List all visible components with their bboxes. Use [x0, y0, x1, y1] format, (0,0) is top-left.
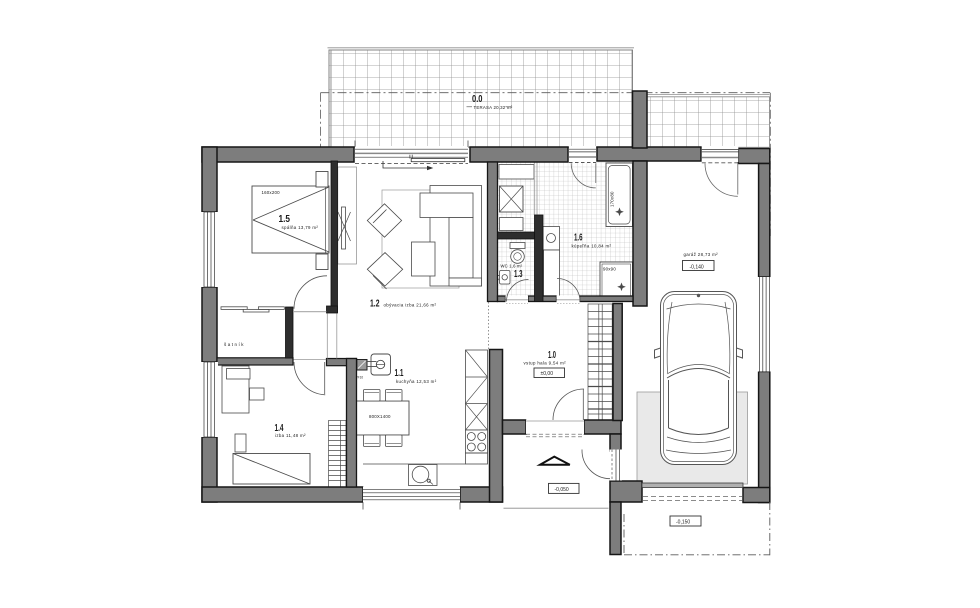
- svg-text:0.0: 0.0: [472, 94, 483, 105]
- svg-text:obývacia izba 21,66 m²: obývacia izba 21,66 m²: [384, 303, 437, 308]
- svg-text:-0,150: -0,150: [676, 520, 690, 526]
- svg-text:vstup hala 9,54 m²: vstup hala 9,54 m²: [524, 361, 567, 366]
- svg-text:1.2: 1.2: [370, 299, 380, 310]
- svg-text:-0,050: -0,050: [555, 487, 569, 493]
- svg-text:1.0: 1.0: [548, 350, 556, 361]
- svg-text:TERASA 20,32 m²: TERASA 20,32 m²: [474, 105, 513, 110]
- svg-text:kuchyňa 12,53 m²: kuchyňa 12,53 m²: [396, 379, 437, 384]
- svg-text:1.5: 1.5: [279, 214, 291, 225]
- svg-text:šatník: šatník: [224, 342, 245, 347]
- svg-text:garáž 28,73 m²: garáž 28,73 m²: [684, 252, 719, 257]
- svg-text:WC 1,6 m²: WC 1,6 m²: [501, 264, 523, 269]
- svg-text:160x200: 160x200: [262, 190, 281, 195]
- svg-text:spálňa 13,79 m²: spálňa 13,79 m²: [282, 225, 319, 230]
- svg-text:kúpeľňa 10,84 m²: kúpeľňa 10,84 m²: [572, 244, 612, 249]
- svg-text:izba 11,48 m²: izba 11,48 m²: [275, 433, 306, 438]
- svg-text:±0,00: ±0,00: [541, 371, 554, 377]
- svg-text:90x90: 90x90: [603, 267, 616, 272]
- svg-text:170x80: 170x80: [610, 191, 615, 207]
- svg-text:800X1400: 800X1400: [369, 414, 391, 419]
- svg-text:1.1: 1.1: [395, 368, 404, 379]
- svg-text:1.6: 1.6: [574, 233, 583, 244]
- svg-text:1.3: 1.3: [514, 269, 523, 280]
- svg-text:-0,140: -0,140: [690, 264, 704, 270]
